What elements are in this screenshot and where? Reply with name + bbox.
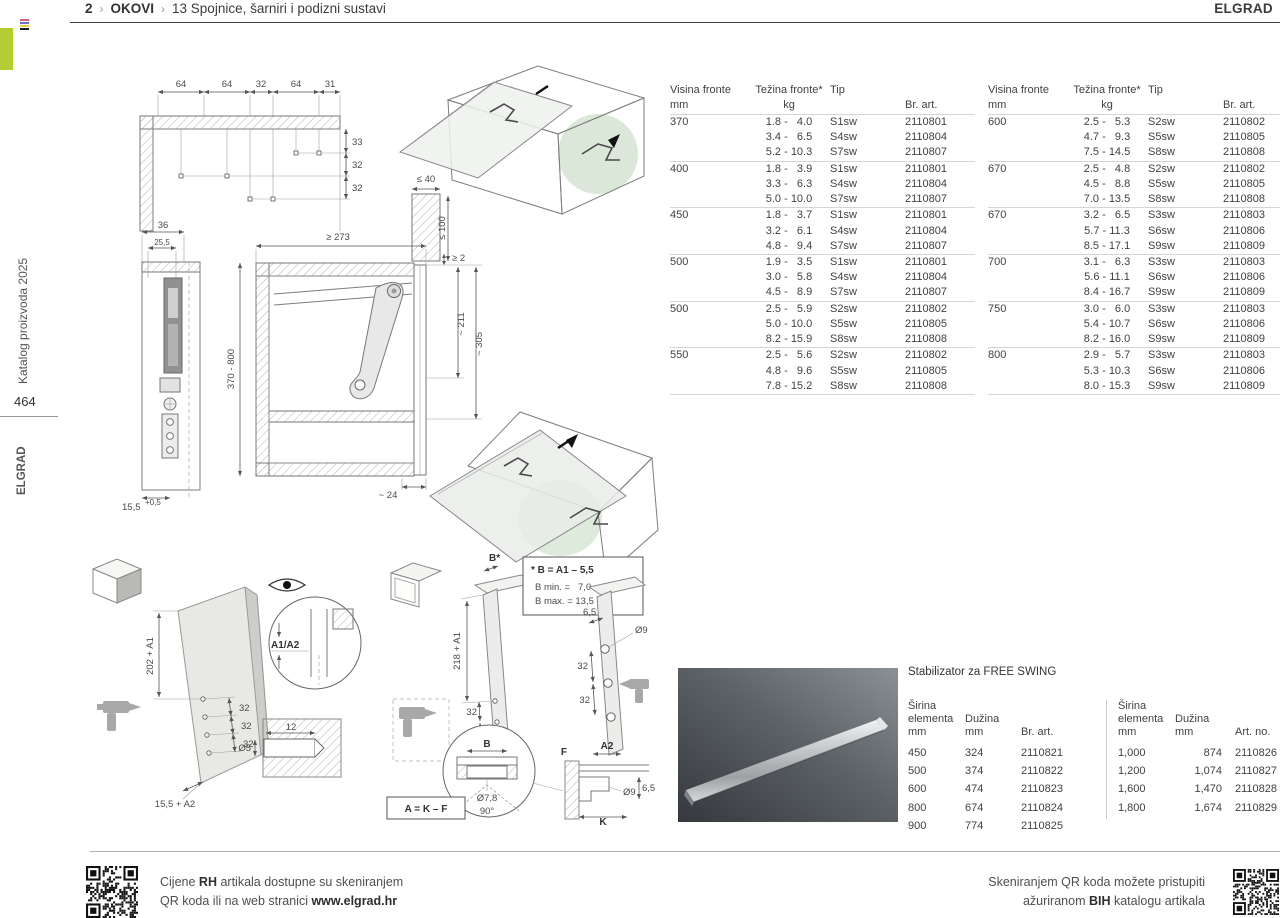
svg-text:32: 32 [577,661,588,672]
drill-icon [399,707,437,737]
svg-text:6,5: 6,5 [642,783,655,794]
table-row: 7.5 - 14.5S8sw2110808 [988,145,1280,160]
svg-text:+0,5: +0,5 [145,498,161,507]
svg-text:Ø9: Ø9 [635,625,648,636]
chevron-separator-icon: › [154,2,172,16]
stabilizer-product-photo [678,668,898,822]
brand-logo-text: ELGRAD [1214,1,1273,16]
svg-text:Ø9: Ø9 [623,787,636,798]
svg-text:K: K [599,817,607,828]
svg-text:* B = A1 – 5,5: * B = A1 – 5,5 [531,565,594,576]
svg-text:90°: 90° [480,806,495,817]
table-row: 6703.2 - 6.5S3sw2110803 [988,207,1280,223]
side-section-drawing: 36 25,5 15,5 +0,5 [112,218,237,518]
breadcrumb-section: OKOVI [111,1,155,16]
svg-text:≥ 2: ≥ 2 [452,253,465,264]
table-row: 5.7 - 11.3S6sw2110806 [988,224,1280,239]
stabilizer-table-left: Širina elementa mm Dužina mm Br. art. 45… [908,700,1098,835]
col-header-tezina: Težina fronte* [1066,83,1148,98]
catalog-page: { "header": { "breadcrumb": {"page":"2",… [0,0,1280,914]
svg-text:A1/A2: A1/A2 [271,640,300,651]
svg-text:33: 33 [352,137,363,148]
svg-text:≥ 273: ≥ 273 [326,232,350,243]
table-header: Visina fronte Težina fronte* Tip mm kg B… [988,83,1280,115]
svg-text:B: B [483,739,490,750]
svg-text:~ 305: ~ 305 [474,332,485,356]
table-row: 8.0 - 15.3S9sw2110809 [988,379,1280,394]
cabinet-icon [93,559,141,603]
svg-text:15,5 + A2: 15,5 + A2 [155,799,195,810]
svg-text:25,5: 25,5 [154,238,170,247]
table-row: 4.8 - 9.4S7sw2110807 [670,239,975,254]
svg-text:A2: A2 [601,741,614,752]
table-header: Širina elementa mm Dužina mm Art. no. [1118,700,1280,739]
svg-text:F: F [561,747,567,758]
hinge-table-left: Visina fronte Težina fronte* Tip mm kg B… [670,83,975,395]
breadcrumb-page-number: 2 [85,1,93,16]
svg-text:A = K – F: A = K – F [405,804,448,815]
table-row: 4001.8 - 3.9S1sw2110801 [670,161,975,177]
drilling-template-left-drawing: 202 + A1 32 32 32 15,5 + A2 A1/A2 12 Ø5 [83,551,348,827]
table-row: 4.5 - 8.9S7sw2110807 [670,285,975,300]
table-row: 7.8 - 15.2S8sw2110808 [670,379,975,394]
color-stripes-icon [20,19,29,31]
green-tab-marker [0,28,13,70]
table-row: 3.4 - 6.5S4sw2110804 [670,130,975,145]
table-row: 8.2 - 16.0S9sw2110809 [988,332,1280,347]
col-header-tip: Tip [1148,83,1223,98]
drill-icon [619,679,649,703]
breadcrumb-title: 13 Spojnice, šarniri i podizni sustavi [172,1,386,16]
svg-text:Ø5: Ø5 [238,743,251,754]
sidebar-page-number: 464 [14,394,36,409]
table-row: 1,8001,6742110829 [1118,799,1280,817]
svg-text:B min. = 7,0: B min. = 7,0 [535,582,591,593]
col-header-visina: Visina fronte [988,83,1066,98]
cabinet-open-3d-drawing [386,56,656,226]
svg-text:~ 211: ~ 211 [456,312,467,335]
table-row: 8002.9 - 5.7S3sw2110803 [988,347,1280,363]
breadcrumb: 2›OKOVI›13 Spojnice, šarniri i podizni s… [85,1,386,16]
table-row: 8.5 - 17.1S9sw2110809 [988,239,1280,254]
stabilizer-title: Stabilizator za FREE SWING [908,666,1056,678]
svg-text:36: 36 [158,220,169,231]
drilling-template-profile-drawing: B* * B = A1 – 5,5 B min. = 7,0 B max. = … [383,551,651,827]
table-body: 3701.8 - 4.0S1sw21108013.4 - 6.5S4sw2110… [670,115,975,395]
table-divider [1106,700,1107,819]
svg-text:B max. = 13,5: B max. = 13,5 [535,596,594,607]
table-row: 5002.5 - 5.9S2sw2110802 [670,301,975,317]
table-row: 8.4 - 16.7S9sw2110809 [988,285,1280,300]
table-row: 4501.8 - 3.7S1sw2110801 [670,207,975,223]
table-row: 7003.1 - 6.3S3sw2110803 [988,254,1280,270]
svg-text:Ø7,8: Ø7,8 [477,793,498,804]
table-row: 3.3 - 6.3S4sw2110804 [670,177,975,192]
table-row: 6004742110823 [908,780,1098,798]
table-row: 5.3 - 10.3S6sw2110806 [988,364,1280,379]
chevron-separator-icon: › [93,2,111,16]
sidebar-brand-vertical: ELGRAD [16,435,28,495]
svg-text:12: 12 [286,722,297,733]
website-link-text: www.elgrad.hr [311,894,397,908]
eye-icon [269,579,305,591]
col-header-art: Br. art. [1223,98,1280,113]
table-row: 3.0 - 5.8S4sw2110804 [670,270,975,285]
table-row: 5001.9 - 3.5S1sw2110801 [670,254,975,270]
svg-text:15,5: 15,5 [122,502,141,513]
table-row: 6702.5 - 4.8S2sw2110802 [988,161,1280,177]
table-row: 5.6 - 11.1S6sw2110806 [988,270,1280,285]
table-body: 1,00087421108261,2001,07421108271,6001,4… [1118,744,1280,817]
table-row: 7503.0 - 6.0S3sw2110803 [988,301,1280,317]
col-header-tezina-unit: kg [748,98,830,113]
table-row: 4.5 - 8.8S5sw2110805 [988,177,1280,192]
col-header-visina: Visina fronte [670,83,748,98]
table-row: 3.2 - 6.1S4sw2110804 [670,224,975,239]
qr-code-bih [1233,869,1279,915]
table-row: 6002.5 - 5.3S2sw2110802 [988,115,1280,130]
drill-icon [97,701,141,731]
table-row: 4.8 - 9.6S5sw2110805 [670,364,975,379]
table-body: 4503242110821500374211082260047421108238… [908,744,1098,835]
svg-text:64: 64 [222,79,233,90]
table-row: 8.2 - 15.9S8sw2110808 [670,332,975,347]
svg-text:32: 32 [256,79,267,90]
col-header-tezina: Težina fronte* [748,83,830,98]
svg-text:370 - 800: 370 - 800 [226,349,237,389]
table-row: 3701.8 - 4.0S1sw2110801 [670,115,975,130]
sidebar-divider [0,416,58,417]
table-row: 9007742110825 [908,817,1098,835]
footer-left-text: Cijene RH artikala dostupne su skeniranj… [160,873,403,911]
footer-divider [90,851,1280,852]
hinge-table-right: Visina fronte Težina fronte* Tip mm kg B… [988,83,1280,395]
table-body: 6002.5 - 5.3S2sw21108024.7 - 9.3S5sw2110… [988,115,1280,395]
svg-text:~ 24: ~ 24 [379,490,398,501]
cabinet-icon [391,563,441,607]
svg-text:32: 32 [579,695,590,706]
table-row: 1,0008742110826 [1118,744,1280,762]
col-header-art: Br. art. [905,98,975,113]
table-row: 7.0 - 13.5S8sw2110808 [988,192,1280,207]
table-row: 8006742110824 [908,799,1098,817]
table-header: Visina fronte Težina fronte* Tip mm kg B… [670,83,975,115]
svg-text:32: 32 [466,707,477,718]
header-divider [70,22,1280,23]
table-row: 5502.5 - 5.6S2sw2110802 [670,347,975,363]
svg-text:64: 64 [291,79,302,90]
svg-text:32: 32 [241,721,252,732]
svg-text:218 + A1: 218 + A1 [452,632,463,670]
svg-text:64: 64 [176,79,187,90]
svg-text:32: 32 [239,703,250,714]
table-header: Širina elementa mm Dužina mm Br. art. [908,700,1098,739]
table-row: 5.4 - 10.7S6sw2110806 [988,317,1280,332]
col-header-tezina-unit: kg [1066,98,1148,113]
sidebar-catalog-label: Katalog proizvoda 2025 [16,252,30,384]
col-header-visina-unit: mm [988,98,1066,113]
table-row: 1,6001,4702110828 [1118,780,1280,798]
qr-code-rh [86,866,138,918]
table-row: 5.2 - 10.3S7sw2110807 [670,145,975,160]
col-header-tip: Tip [830,83,905,98]
svg-text:202 + A1: 202 + A1 [145,637,156,675]
stabilizer-table-right: Širina elementa mm Dužina mm Art. no. 1,… [1118,700,1280,817]
table-row: 5.0 - 10.0S7sw2110807 [670,192,975,207]
footer-right-text: Skeniranjem QR koda možete pristupiti až… [785,873,1205,911]
table-row: 1,2001,0742110827 [1118,762,1280,780]
svg-text:6,5: 6,5 [583,607,596,618]
table-row: 5003742110822 [908,762,1098,780]
table-row: 4503242110821 [908,744,1098,762]
table-row: 5.0 - 10.0S5sw2110805 [670,317,975,332]
svg-text:B*: B* [489,553,500,564]
table-row: 4.7 - 9.3S5sw2110805 [988,130,1280,145]
svg-text:31: 31 [325,79,336,90]
col-header-visina-unit: mm [670,98,748,113]
